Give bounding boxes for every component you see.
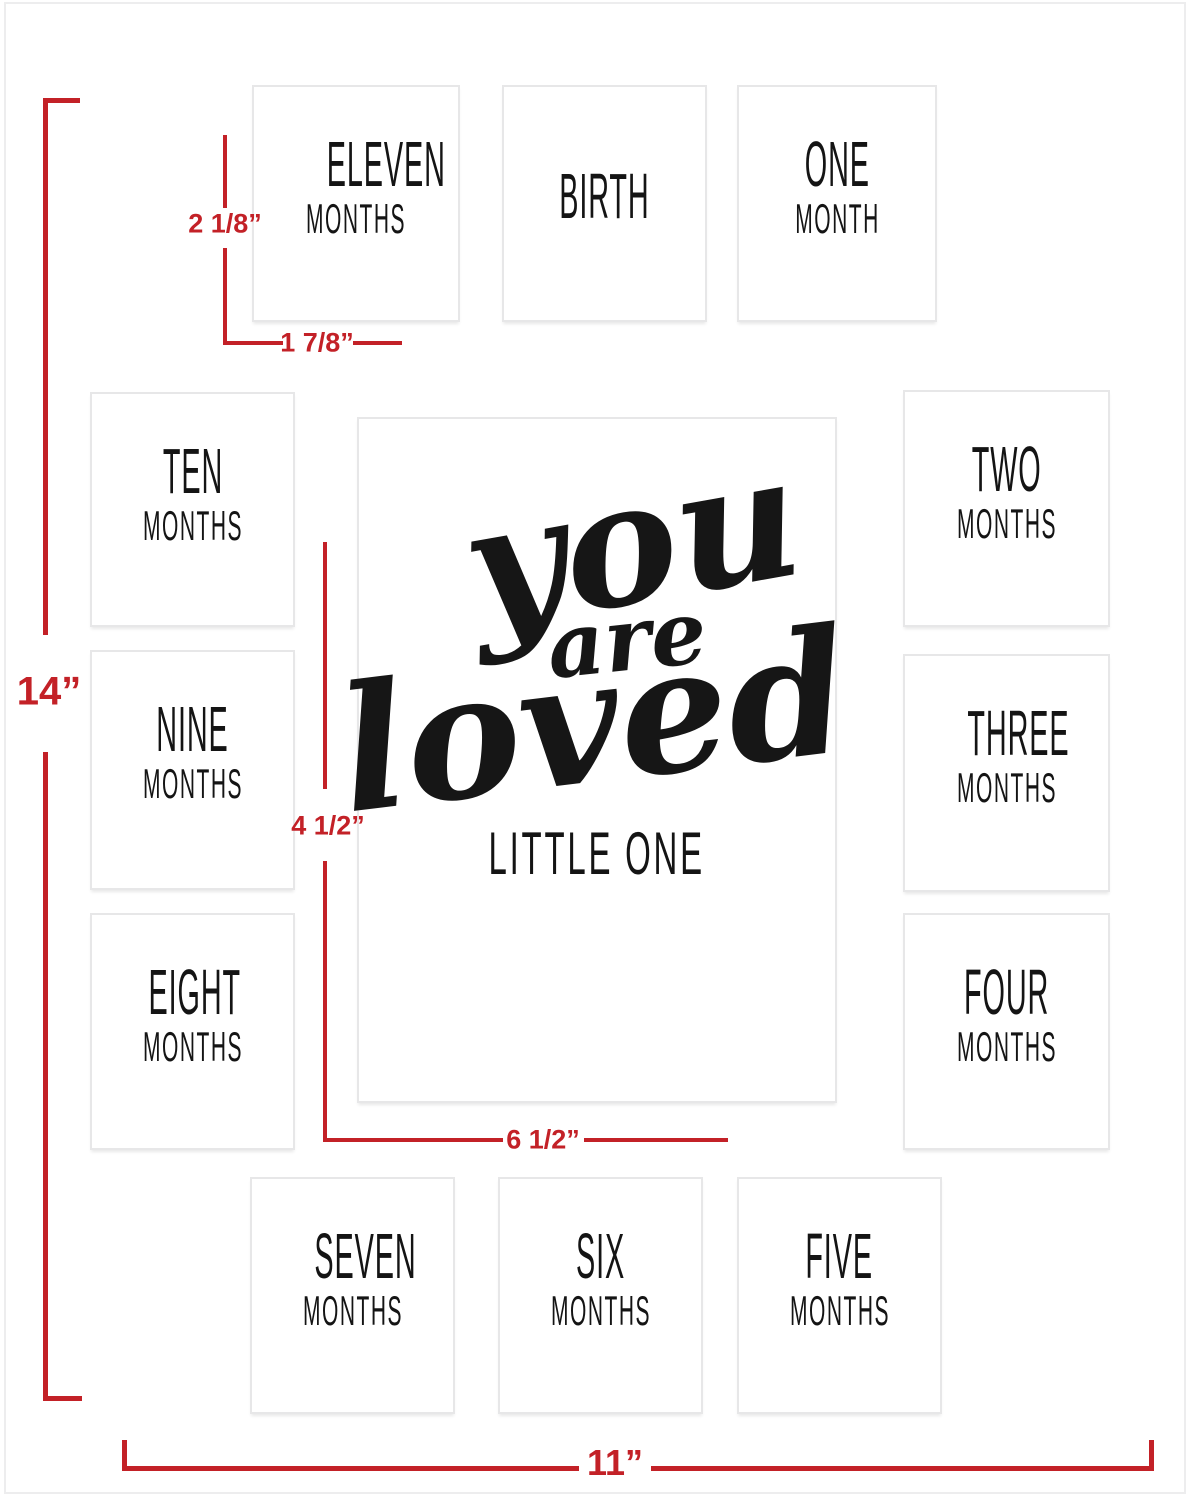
opening-label: FIVE MONTHS (739, 1179, 940, 1331)
opening-label: SIX MONTHS (500, 1179, 701, 1331)
opening-title: ONE (804, 137, 869, 191)
opening-label: NINE MONTHS (92, 652, 293, 804)
opening-title: NINE (156, 702, 228, 756)
quote-word-loved: loved (330, 600, 858, 841)
opening-label: ELEVEN MONTHS (254, 87, 458, 239)
opening-label: ONE MONTH (739, 87, 935, 239)
dimension-line-14in-upper (43, 98, 48, 635)
dimension-line-1-7-8in-left (223, 341, 283, 345)
dimension-line-11in-right-tick (1149, 1440, 1154, 1471)
opening-subtitle: MONTHS (551, 1291, 651, 1331)
opening-subtitle: MONTHS (957, 504, 1057, 544)
dimension-line-11in-right (651, 1466, 1154, 1471)
opening-label: EIGHT MONTHS (92, 915, 293, 1067)
opening-six-months: SIX MONTHS (498, 1177, 703, 1414)
milestone-frame-mat-diagram: ELEVEN MONTHS BIRTH ONE MONTH TEN MONTHS… (0, 0, 1194, 1500)
opening-label: TWO MONTHS (905, 392, 1108, 544)
center-quote: you are loved LITTLE ONE (359, 419, 835, 888)
dimension-label-opening-width: 1 7/8” (280, 328, 354, 359)
opening-two-months: TWO MONTHS (903, 390, 1110, 627)
opening-five-months: FIVE MONTHS (737, 1177, 942, 1414)
opening-title: FIVE (806, 1229, 874, 1283)
opening-title: EIGHT (149, 965, 242, 1019)
opening-title: ELEVEN (327, 137, 446, 191)
opening-title: BIRTH (559, 169, 649, 223)
dimension-line-2-1-8in-upper (223, 135, 227, 208)
dimension-line-11in-left (122, 1466, 579, 1471)
dimension-label-mat-width: 11” (587, 1442, 643, 1484)
opening-title: FOUR (964, 965, 1049, 1019)
opening-eleven-months: ELEVEN MONTHS (252, 85, 460, 322)
quote-subtitle: LITTLE ONE (489, 819, 705, 888)
opening-center-print: you are loved LITTLE ONE (357, 417, 837, 1103)
dimension-line-14in-lower (43, 752, 48, 1401)
opening-four-months: FOUR MONTHS (903, 913, 1110, 1150)
opening-label: SEVEN MONTHS (252, 1179, 453, 1331)
opening-title: THREE (967, 706, 1069, 760)
opening-title: TWO (972, 442, 1042, 496)
dimension-line-6-1-2in-left (323, 1138, 503, 1142)
dimension-line-2-1-8in-lower (223, 248, 227, 345)
opening-birth: BIRTH (502, 85, 707, 322)
dimension-line-6-1-2in-right (584, 1138, 728, 1142)
dimension-label-mat-height: 14” (17, 670, 82, 715)
opening-subtitle: MONTH (795, 199, 879, 239)
dimension-label-center-horizontal: 6 1/2” (506, 1125, 580, 1156)
opening-subtitle: MONTHS (143, 764, 243, 804)
dimension-label-opening-height: 2 1/8” (188, 209, 262, 240)
opening-three-months: THREE MONTHS (903, 654, 1110, 892)
opening-seven-months: SEVEN MONTHS (250, 1177, 455, 1414)
dimension-line-4-1-2in-lower (323, 861, 327, 1142)
opening-label: TEN MONTHS (92, 394, 293, 546)
opening-subtitle: MONTHS (957, 1027, 1057, 1067)
opening-title: SIX (576, 1229, 625, 1283)
dimension-line-4-1-2in-upper (323, 542, 327, 789)
opening-ten-months: TEN MONTHS (90, 392, 295, 627)
dimension-line-14in-top-tick (45, 98, 80, 103)
opening-subtitle: MONTHS (143, 1027, 243, 1067)
opening-eight-months: EIGHT MONTHS (90, 913, 295, 1150)
opening-subtitle: MONTHS (143, 506, 243, 546)
opening-subtitle: MONTHS (957, 768, 1057, 808)
opening-nine-months: NINE MONTHS (90, 650, 295, 890)
opening-one-month: ONE MONTH (737, 85, 937, 322)
dimension-line-14in-bottom-tick (43, 1396, 82, 1401)
opening-label: BIRTH (504, 87, 705, 241)
dimension-line-1-7-8in-right (353, 341, 402, 345)
dimension-label-center-vertical: 4 1/2” (291, 811, 365, 842)
opening-title: SEVEN (314, 1229, 416, 1283)
opening-subtitle: MONTHS (790, 1291, 890, 1331)
opening-subtitle: MONTHS (306, 199, 406, 239)
opening-label: THREE MONTHS (905, 656, 1108, 808)
opening-label: FOUR MONTHS (905, 915, 1108, 1067)
opening-subtitle: MONTHS (303, 1291, 403, 1331)
opening-title: TEN (162, 444, 222, 498)
